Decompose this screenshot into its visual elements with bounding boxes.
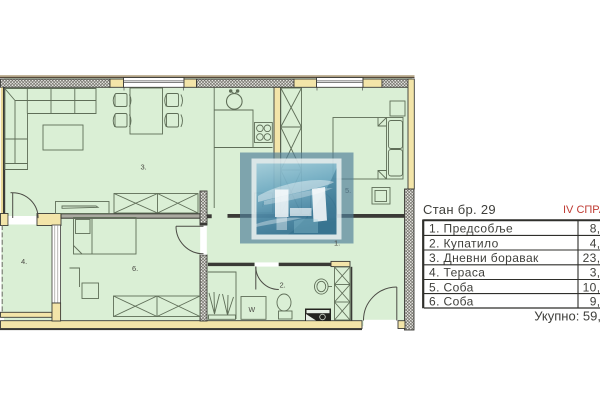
svg-text:5. Соба: 5. Соба xyxy=(429,280,474,294)
svg-text:4,: 4, xyxy=(590,236,600,250)
svg-text:3. Дневни боравак: 3. Дневни боравак xyxy=(429,251,539,265)
svg-text:9,: 9, xyxy=(590,295,600,309)
svg-text:6. Соба: 6. Соба xyxy=(429,295,474,309)
svg-text:IV СПРАТ: IV СПРАТ xyxy=(563,204,600,216)
svg-text:4.: 4. xyxy=(21,257,27,266)
svg-text:3,: 3, xyxy=(590,266,600,280)
svg-text:2.: 2. xyxy=(280,281,286,290)
svg-text:Стан бр. 29: Стан бр. 29 xyxy=(423,202,496,217)
svg-text:1.: 1. xyxy=(334,239,340,248)
svg-text:6.: 6. xyxy=(132,264,138,273)
svg-text:W: W xyxy=(249,307,256,314)
svg-text:23,: 23, xyxy=(583,251,600,265)
svg-text:2. Купатило: 2. Купатило xyxy=(429,236,499,250)
svg-text:10,: 10, xyxy=(583,280,600,294)
svg-text:Укупно: 59,: Укупно: 59, xyxy=(534,309,600,324)
svg-text:8,: 8, xyxy=(590,222,600,236)
svg-text:3.: 3. xyxy=(141,163,147,172)
svg-text:1. Предсобље: 1. Предсобље xyxy=(429,222,513,236)
svg-text:4. Тераса: 4. Тераса xyxy=(429,266,485,280)
